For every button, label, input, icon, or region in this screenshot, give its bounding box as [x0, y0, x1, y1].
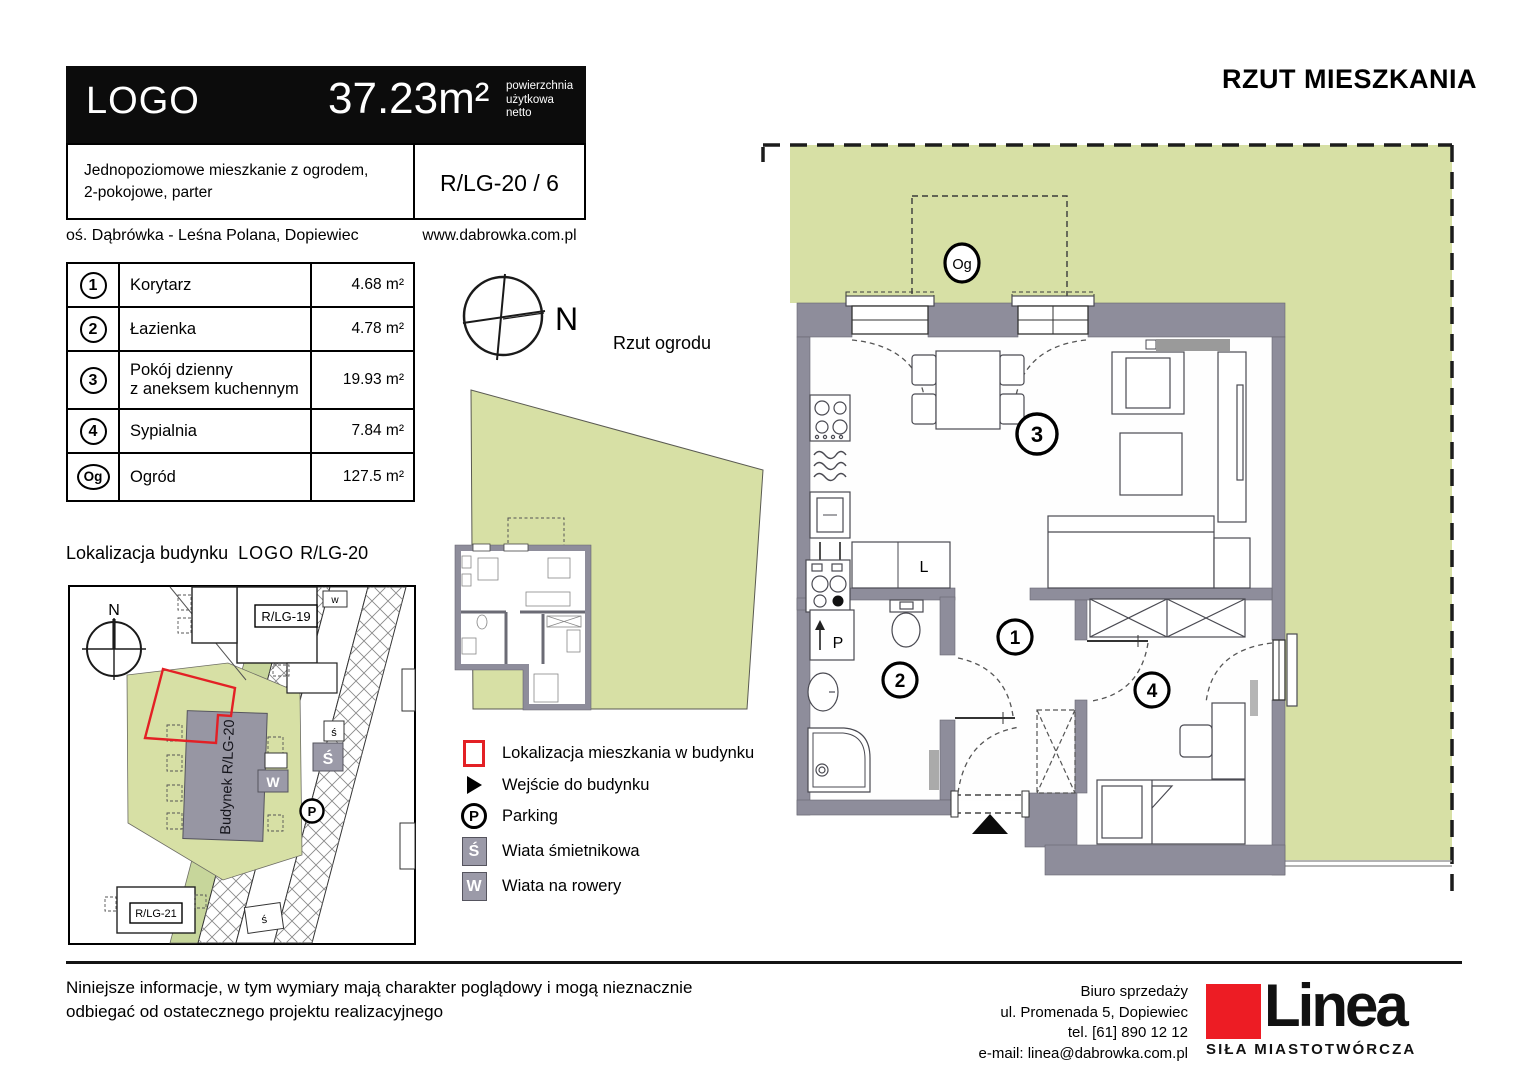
room-number-cell: 2: [68, 308, 120, 350]
description-line2: 2-pokojowe, parter: [84, 182, 413, 204]
tv-shelf: [1146, 339, 1230, 351]
kitchen-counter: L: [852, 542, 950, 588]
kitchen-stove: [810, 395, 850, 441]
site-map-title-logo: LOGO: [238, 543, 294, 563]
room-name: Ogród: [120, 454, 310, 500]
table-row: 4 Sypialnia 7.84 m²: [68, 410, 413, 454]
legend-label: Wejście do budynku: [502, 776, 649, 795]
garden-plan-minimap: [448, 380, 768, 718]
toilet: [890, 600, 923, 647]
bedroom-radiator: [1250, 680, 1258, 716]
parking-icon: P: [458, 803, 490, 829]
washing-machine: P: [810, 610, 854, 660]
office-name: Biuro sprzedaży: [958, 982, 1188, 1003]
apartment-flyer: LOGO 37.23m² powierzchnia użytkowa netto…: [0, 0, 1528, 1080]
tv-cabinet: [1218, 352, 1246, 522]
room-name-text: Łazienka: [130, 320, 310, 339]
area-caption: powierzchnia użytkowa netto: [506, 80, 573, 121]
developer-logo: LOGO: [86, 80, 200, 123]
armchair: [1112, 352, 1184, 414]
room-name: Sypialnia: [120, 410, 310, 452]
legend-item-bike-shelter: W Wiata na rowery: [458, 871, 621, 901]
room-name: Pokój dzienny z aneksem kuchennym: [120, 352, 310, 408]
room-name-text: Korytarz: [130, 276, 310, 295]
bedroom-number: 4: [1147, 681, 1158, 702]
website-url: www.dabrowka.com.pl: [413, 227, 586, 245]
header-black-bar: LOGO 37.23m² powierzchnia użytkowa netto: [66, 66, 586, 143]
room-number-cell: 3: [68, 352, 120, 408]
footer-divider: [66, 961, 1462, 964]
trash-badge-label: Ś: [323, 749, 334, 768]
room-4-badge: 4: [80, 418, 107, 445]
living-room-badge: 3: [1017, 414, 1057, 454]
area-caption-line2: użytkowa: [506, 94, 573, 108]
description-line1: Jednopoziomowe mieszkanie z ogrodem,: [84, 160, 413, 182]
linea-logo-square: [1206, 984, 1261, 1039]
trash-small-bottom: ś: [244, 903, 283, 934]
legend-item-parking: P Parking: [458, 801, 558, 831]
bike-shelter-icon: W: [458, 872, 490, 901]
legend-label: Wiata śmietnikowa: [502, 842, 640, 861]
building-entrance-link: [265, 753, 287, 768]
room-name: Korytarz: [120, 264, 310, 306]
table-row: 1 Korytarz 4.68 m²: [68, 264, 413, 308]
room-number-cell: 4: [68, 410, 120, 452]
trash-shelter-icon: Ś: [458, 837, 490, 866]
living-room-number: 3: [1031, 422, 1043, 447]
corridor-badge: 1: [998, 620, 1032, 654]
apartment-floor-plan: Og: [745, 110, 1470, 910]
site-map-title-code: R/LG-20: [300, 543, 368, 563]
floor-plan-title: RZUT MIESZKANIA: [1222, 64, 1477, 95]
table-row: 3 Pokój dzienny z aneksem kuchennym 19.9…: [68, 352, 413, 410]
bathroom-sink: [808, 673, 838, 711]
garden-badge: Og: [77, 464, 110, 490]
site-map-title-prefix: Lokalizacja budynku: [66, 543, 228, 563]
room-number-cell: Og: [68, 454, 120, 500]
bathroom-badge: 2: [883, 663, 917, 697]
shower: [808, 728, 870, 792]
room-area: 127.5 m²: [310, 454, 413, 500]
building-rlg21-label: R/LG-21: [135, 908, 177, 920]
room-name-text2: z aneksem kuchennym: [130, 380, 310, 399]
room-area: 7.84 m²: [310, 410, 413, 452]
compass-north-label: N: [555, 301, 578, 337]
far-building: [402, 669, 415, 711]
table-row: Og Ogród 127.5 m²: [68, 454, 413, 500]
building-rlg19-label: R/LG-19: [261, 609, 310, 624]
garden-room-badge: Og: [945, 244, 979, 282]
bike-shelter-badge: W: [258, 770, 288, 792]
room-name-text: Pokój dzienny: [130, 361, 310, 380]
area-caption-line3: netto: [506, 107, 573, 121]
legend-item-apartment-location: Lokalizacja mieszkania w budynku: [458, 738, 754, 768]
building-rlg21: R/LG-21: [105, 887, 206, 933]
far-building: [400, 823, 415, 869]
office-phone: tel. [61] 890 12 12: [958, 1023, 1188, 1044]
room-name-text: Ogród: [130, 468, 310, 487]
building-rlg20: Budynek R/LG-20: [183, 711, 267, 842]
legend-item-entrance: Wejście do budynku: [458, 770, 649, 800]
legend-label: Parking: [502, 807, 558, 826]
coffee-table: [1120, 433, 1182, 495]
bike-shelter-small-label: w: [330, 595, 339, 606]
disclaimer-line2: odbiegać od ostatecznego projektu realiz…: [66, 1000, 692, 1024]
bike-badge-label: W: [266, 774, 280, 790]
legend-label: Lokalizacja mieszkania w budynku: [502, 744, 754, 763]
site-map-title: Lokalizacja budynkuLOGOR/LG-20: [66, 543, 374, 564]
room-3-badge: 3: [80, 367, 107, 394]
disclaimer-line1: Niniejsze informacje, w tym wymiary mają…: [66, 976, 692, 1000]
room-area: 4.78 m²: [310, 308, 413, 350]
parking-badge-label: P: [308, 804, 317, 819]
apartment-description: Jednopoziomowe mieszkanie z ogrodem, 2-p…: [66, 143, 415, 220]
legend-label: Wiata na rowery: [502, 877, 621, 896]
corridor-number: 1: [1010, 628, 1021, 649]
kitchen-sink: [806, 560, 850, 612]
apartment-area: 37.23m²: [328, 74, 489, 124]
office-address: ul. Promenada 5, Dopiewiec: [958, 1003, 1188, 1024]
fridge-label: L: [920, 559, 929, 576]
bed: [1097, 780, 1245, 844]
bathroom-radiator: [929, 750, 939, 790]
area-caption-line1: powierzchnia: [506, 80, 573, 94]
room-2-badge: 2: [80, 316, 107, 343]
kitchen-fridge-cabinet: [810, 492, 850, 538]
apartment-location-icon: [458, 740, 490, 767]
trash-small-top-label: ś: [331, 727, 337, 739]
room-number-cell: 1: [68, 264, 120, 306]
room-area: 19.93 m²: [310, 352, 413, 408]
room-name-text: Sypialnia: [130, 422, 310, 441]
bathroom-number: 2: [895, 671, 906, 692]
disclaimer: Niniejsze informacje, w tym wymiary mają…: [66, 976, 692, 1024]
linea-logo-tagline: SIŁA MIASTOTWÓRCZA: [1206, 1041, 1464, 1058]
unit-code: R/LG-20 / 6: [413, 143, 586, 220]
room-name: Łazienka: [120, 308, 310, 350]
room-1-badge: 1: [80, 272, 107, 299]
compass-rose: N: [455, 268, 590, 363]
site-compass-north-label: N: [108, 602, 120, 619]
room-area-table: 1 Korytarz 4.68 m² 2 Łazienka 4.78 m² 3 …: [66, 262, 415, 502]
parking-badge: P: [301, 800, 324, 823]
estate-location: oś. Dąbrówka - Leśna Polana, Dopiewiec: [66, 227, 359, 245]
linea-logo-wordmark: Linea: [1264, 971, 1406, 1040]
sales-office-contact: Biuro sprzedaży ul. Promenada 5, Dopiewi…: [958, 982, 1188, 1064]
office-email: e-mail: linea@dabrowka.com.pl: [958, 1044, 1188, 1065]
entrance-arrow-icon: [458, 776, 490, 794]
bedroom-wardrobe: [1090, 599, 1245, 637]
bedroom-badge: 4: [1135, 673, 1169, 707]
room-area: 4.68 m²: [310, 264, 413, 306]
garden-room-label: Og: [952, 257, 971, 273]
washer-label: P: [833, 635, 844, 652]
table-row: 2 Łazienka 4.78 m²: [68, 308, 413, 352]
legend-item-trash-shelter: Ś Wiata śmietnikowa: [458, 836, 640, 866]
building-location-map: R/LG-19 w Budynek R/LG-20 ś Ś: [68, 585, 416, 945]
garden-view-title: Rzut ogrodu: [613, 333, 711, 354]
building-entrance-arrow: [972, 814, 1008, 834]
